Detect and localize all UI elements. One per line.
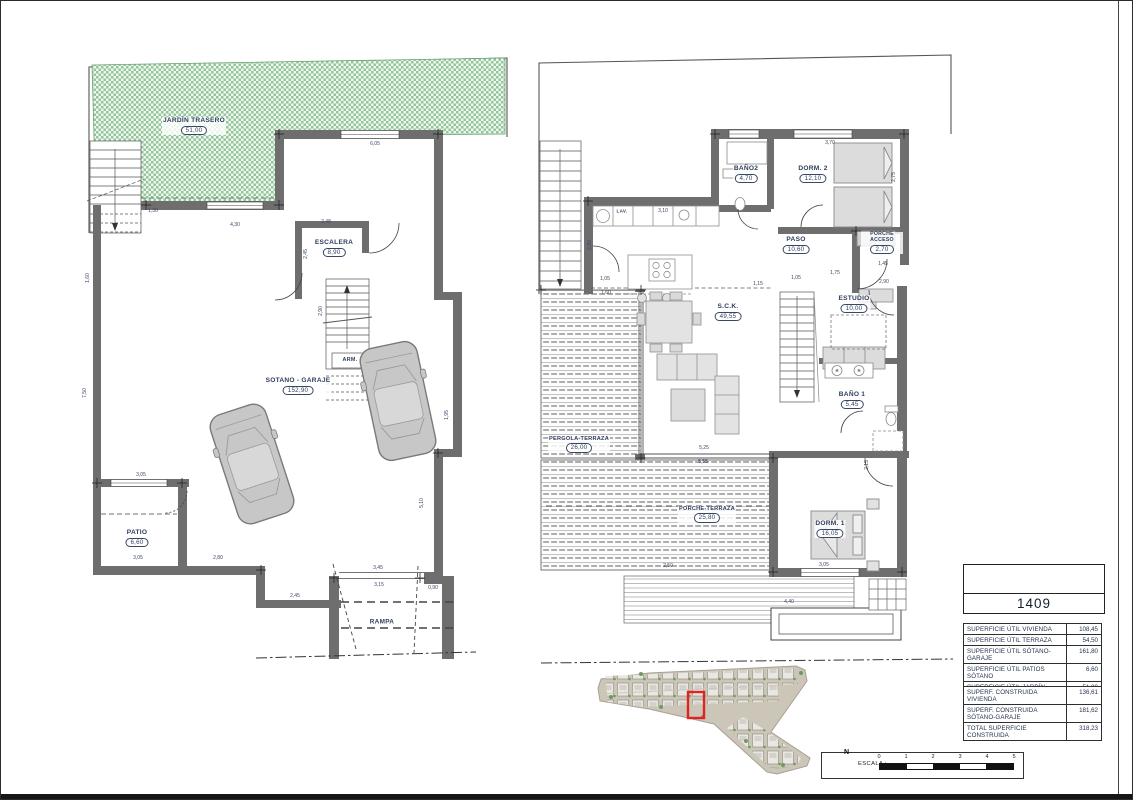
room-label-jardin-trasero: JARDÍN TRASERO 51,00 bbox=[162, 117, 226, 135]
dimension: 2,80 bbox=[213, 555, 223, 561]
car-left bbox=[203, 400, 301, 529]
room-label-dorm2: DORM. 2 12,10 bbox=[797, 165, 828, 183]
dimension: 3,70 bbox=[825, 140, 835, 146]
room-name: PASO bbox=[783, 236, 810, 244]
title-block-empty-cell bbox=[964, 565, 1104, 594]
dimension: 3,05 bbox=[136, 472, 146, 478]
room-area-value: 5,45 bbox=[840, 400, 863, 409]
dimension: 3,10 bbox=[658, 208, 668, 214]
room-name: ESTUDIO bbox=[838, 295, 869, 303]
room-name: BAÑO 1 bbox=[839, 391, 865, 399]
laundry-label: LAV. bbox=[616, 209, 629, 214]
room-area-value: 25,80 bbox=[694, 513, 721, 522]
dimension: 3,05 bbox=[133, 555, 143, 561]
room-label-sck: S.C.K. 49,55 bbox=[714, 303, 743, 321]
car-right bbox=[354, 338, 442, 463]
sheet-bottom-border bbox=[1, 794, 1132, 799]
surface-table-construida: SUPERF. CONSTRUIDA VIVIENDA 136,61 SUPER… bbox=[963, 687, 1102, 741]
room-label-porche-terraza: PORCHE-TERRAZA 25,80 bbox=[678, 506, 736, 523]
room-area-value: 49,55 bbox=[715, 312, 742, 321]
room-area-value: 10,60 bbox=[783, 245, 810, 254]
room-name: DORM. 2 bbox=[798, 165, 827, 173]
surface-label: TOTAL SUPERFICIE CONSTRUIDA bbox=[964, 723, 1067, 740]
scale-tick: 2 bbox=[931, 754, 934, 760]
surface-label: SUPERF. CONSTRUIDA VIVIENDA bbox=[964, 687, 1067, 704]
room-label-patio: PATIO 6,60 bbox=[124, 529, 149, 547]
dimension: 1,15 bbox=[753, 281, 763, 287]
room-area-value: 51,00 bbox=[181, 126, 208, 135]
dimension: 5,25 bbox=[699, 445, 709, 451]
room-label-bano1: BAÑO 1 5,45 bbox=[838, 391, 866, 409]
dimension: 1,05 bbox=[600, 276, 610, 282]
room-area-value: 8,90 bbox=[322, 248, 345, 257]
room-label-pergola-terraza: PERGOLA-TERRAZA 26,00 bbox=[548, 436, 610, 453]
dimension: 4,40 bbox=[784, 599, 794, 605]
room-name: JARDÍN TRASERO bbox=[163, 117, 225, 125]
scale-tick: 3 bbox=[958, 754, 961, 760]
dimension: 2,15 bbox=[864, 460, 870, 470]
room-area-value: 2,70 bbox=[870, 245, 893, 254]
table-row: SUPERFICIE ÚTIL PATIOS SÓTANO 6,60 bbox=[963, 663, 1102, 682]
site-plan bbox=[598, 666, 810, 774]
table-row: SUPERF. CONSTRUIDA SÓTANO-GARAJE 181,62 bbox=[963, 704, 1102, 723]
room-area-value: 16,05 bbox=[817, 529, 844, 538]
interior-stair bbox=[780, 292, 819, 402]
dimension: 1,30 bbox=[148, 208, 158, 214]
dimension: 1,60 bbox=[601, 290, 611, 296]
scale-tick: 5 bbox=[1012, 754, 1015, 760]
table-row: SUPERFICIE ÚTIL SÓTANO-GARAJE 161,80 bbox=[963, 645, 1102, 664]
surface-value: 181,62 bbox=[1067, 705, 1101, 722]
north-label: N bbox=[844, 749, 849, 756]
dining-set bbox=[637, 292, 701, 352]
surface-value: 54,50 bbox=[1067, 635, 1101, 645]
dimension: 1,75 bbox=[830, 270, 840, 276]
closet-label: ARM. bbox=[342, 357, 359, 363]
room-name: BAÑO2 bbox=[734, 165, 758, 173]
dimension: 1,45 bbox=[878, 261, 888, 267]
room-area-value: 26,00 bbox=[566, 443, 593, 452]
dimension: 2,50 bbox=[663, 563, 673, 569]
room-area-value: 12,10 bbox=[800, 174, 827, 183]
sofa-group bbox=[657, 354, 739, 434]
room-label-porche-acceso: PORCHE ACCESO 2,70 bbox=[861, 232, 903, 254]
sheet-margin-line bbox=[1118, 1, 1119, 799]
scale-tick: 1 bbox=[904, 754, 907, 760]
scale-bar-segments bbox=[879, 763, 1014, 770]
dimension: 3,45 bbox=[373, 565, 383, 571]
room-name: PERGOLA-TERRAZA bbox=[549, 436, 609, 442]
title-block: 1409 bbox=[963, 564, 1105, 614]
dimension: 3,05 bbox=[819, 562, 829, 568]
table-row: SUPERFICIE ÚTIL TERRAZA 54,50 bbox=[963, 634, 1102, 646]
room-name: PATIO bbox=[125, 529, 148, 537]
dimension: 5,10 bbox=[419, 498, 425, 508]
pergola-terraza-deck bbox=[541, 290, 906, 640]
room-name: ESCALERA bbox=[315, 239, 353, 247]
room-name: SOTANO - GARAJE bbox=[266, 377, 331, 385]
scale-tick: 0 bbox=[877, 754, 880, 760]
dimension: 2,80 bbox=[587, 240, 593, 250]
dimension: 2,48 bbox=[321, 219, 331, 225]
dimension: 6,05 bbox=[370, 141, 380, 147]
room-area-value: 4,70 bbox=[734, 174, 757, 183]
dimension: 5,55 bbox=[698, 459, 708, 465]
room-area-value: 152,90 bbox=[283, 386, 313, 395]
ramp-label: RAMPA bbox=[369, 619, 395, 626]
surface-label: SUPERFICIE ÚTIL VIVIENDA bbox=[964, 624, 1067, 634]
room-name: DORM. 1 bbox=[815, 520, 844, 528]
room-label-sotano-garaje: SOTANO - GARAJE 152,90 bbox=[265, 377, 332, 395]
dimension: 2,45 bbox=[303, 249, 309, 259]
room-area-value: 10,00 bbox=[841, 304, 868, 313]
table-row: SUPERF. CONSTRUIDA VIVIENDA 136,61 bbox=[963, 686, 1102, 705]
architectural-drawing-sheet: JARDÍN TRASERO 51,00 ESCALERA 8,90 SOTAN… bbox=[0, 0, 1133, 800]
right-plan-main-floor bbox=[536, 55, 953, 663]
dimension: 1,95 bbox=[444, 410, 450, 420]
unit-number: 1409 bbox=[964, 594, 1104, 613]
room-area-value: 6,60 bbox=[125, 538, 148, 547]
surface-label: SUPERFICIE ÚTIL TERRAZA bbox=[964, 635, 1067, 645]
dimension: 1,05 bbox=[791, 275, 801, 281]
left-plan-basement bbox=[87, 58, 507, 659]
table-row: SUPERFICIE ÚTIL VIVIENDA 108,45 bbox=[963, 623, 1102, 635]
dimension: 2,75 bbox=[891, 172, 897, 182]
room-label-paso: PASO 10,60 bbox=[782, 236, 811, 254]
dimension: 2,90 bbox=[879, 279, 889, 285]
dimension: 7,50 bbox=[82, 388, 88, 398]
dimension: 4,30 bbox=[230, 222, 240, 228]
surface-value: 161,80 bbox=[1067, 646, 1101, 663]
table-row: TOTAL SUPERFICIE CONSTRUIDA 318,23 bbox=[963, 722, 1102, 741]
surface-value: 108,45 bbox=[1067, 624, 1101, 634]
surface-value: 6,60 bbox=[1067, 664, 1101, 681]
room-name: PORCHE ACCESO bbox=[862, 232, 902, 244]
room-label-escalera: ESCALERA 8,90 bbox=[314, 239, 354, 257]
room-label-bano2: BAÑO2 4,70 bbox=[733, 165, 759, 183]
entry-stair bbox=[540, 141, 581, 289]
scale-tick: 4 bbox=[985, 754, 988, 760]
surface-value: 136,61 bbox=[1067, 687, 1101, 704]
dimension: 3,15 bbox=[374, 582, 384, 588]
room-name: PORCHE-TERRAZA bbox=[679, 506, 735, 512]
room-name: S.C.K. bbox=[715, 303, 742, 311]
dimension: 1,60 bbox=[85, 273, 91, 283]
surface-label: SUPERFICIE ÚTIL SÓTANO-GARAJE bbox=[964, 646, 1067, 663]
dimension: 2,90 bbox=[318, 306, 324, 316]
surface-value: 318,23 bbox=[1067, 723, 1101, 740]
room-label-estudio: ESTUDIO 10,00 bbox=[837, 295, 870, 313]
dimension: 0,90 bbox=[428, 585, 438, 591]
surface-label: SUPERFICIE ÚTIL PATIOS SÓTANO bbox=[964, 664, 1067, 681]
dimension: 2,45 bbox=[290, 593, 300, 599]
room-label-dorm1: DORM. 1 16,05 bbox=[814, 520, 845, 538]
surface-label: SUPERF. CONSTRUIDA SÓTANO-GARAJE bbox=[964, 705, 1067, 722]
